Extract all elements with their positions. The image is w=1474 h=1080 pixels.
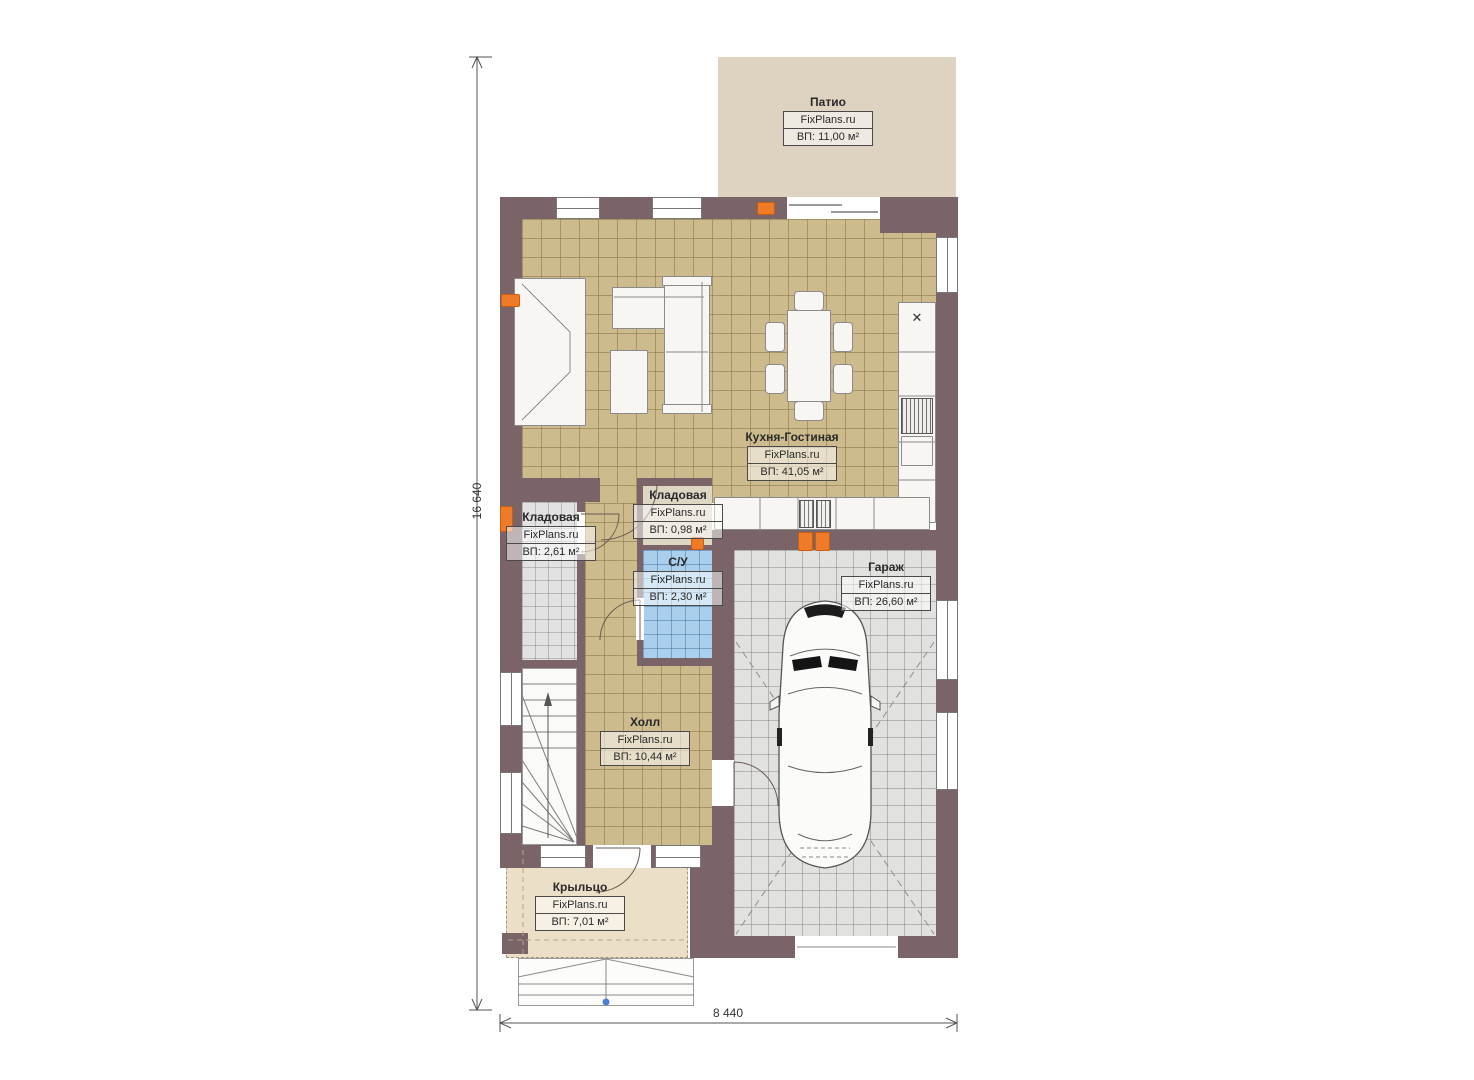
room-site: FixPlans.ru: [634, 505, 722, 522]
room-area: ВП: 10,44 м²: [601, 749, 689, 765]
dining-chair: [833, 364, 853, 394]
room-name: Холл: [583, 715, 707, 729]
window: [652, 197, 702, 219]
room-area: ВП: 11,00 м²: [784, 129, 872, 145]
sofa-seat: [664, 280, 710, 414]
stove: [901, 398, 933, 434]
room-name: Кладовая: [489, 510, 613, 524]
fireplace: [514, 278, 586, 426]
window: [936, 600, 958, 680]
window: [500, 772, 522, 834]
room-site: FixPlans.ru: [507, 527, 595, 544]
room-site: FixPlans.ru: [601, 732, 689, 749]
wall: [522, 660, 577, 668]
coffee-table: [610, 350, 648, 414]
room-area: ВП: 2,61 м²: [507, 544, 595, 560]
room-area: ВП: 7,01 м²: [536, 914, 624, 930]
door-opening: [712, 760, 734, 806]
room-name: Патио: [766, 95, 890, 109]
room-site: FixPlans.ru: [748, 447, 836, 464]
dining-chair: [794, 291, 824, 311]
room-site: FixPlans.ru: [784, 112, 872, 129]
garage-door-opening: [795, 936, 898, 958]
room-name: Гараж: [824, 560, 948, 574]
room-site: FixPlans.ru: [634, 572, 722, 589]
floor-plan: ✕: [0, 0, 1474, 1080]
kitchen-cabinet: [901, 436, 933, 466]
room-label-bathroom: С/У FixPlans.ru ВП: 2,30 м²: [616, 555, 740, 606]
room-label-kitchen-living: Кухня-Гостиная FixPlans.ru ВП: 41,05 м²: [730, 430, 854, 481]
window: [936, 237, 958, 293]
room-label-storage: Кладовая FixPlans.ru ВП: 2,61 м²: [489, 510, 613, 561]
room-label-hall: Холл FixPlans.ru ВП: 10,44 м²: [583, 715, 707, 766]
wall: [502, 933, 528, 954]
dining-chair: [765, 322, 785, 352]
staircase: [522, 668, 577, 845]
window: [556, 197, 600, 219]
wall: [637, 658, 712, 666]
radiator-icon: [815, 532, 830, 551]
window: [540, 845, 586, 868]
entry-steps: [518, 958, 694, 1006]
window: [936, 712, 958, 790]
car: [768, 596, 882, 878]
appliance: [799, 500, 814, 528]
dining-chair: [833, 322, 853, 352]
room-area: ВП: 41,05 м²: [748, 464, 836, 480]
radiator-icon: [798, 532, 813, 551]
room-area: ВП: 26,60 м²: [842, 594, 930, 610]
room-name: С/У: [616, 555, 740, 569]
room-name: Кухня-Гостиная: [730, 430, 854, 444]
dimension-height: 16 640: [470, 471, 484, 531]
sliding-door: [787, 197, 880, 219]
wall: [637, 478, 712, 486]
window: [500, 672, 522, 726]
sink-icon: ✕: [904, 310, 930, 326]
entrance-opening: [593, 845, 651, 868]
room-label-garage: Гараж FixPlans.ru ВП: 26,60 м²: [824, 560, 948, 611]
room-site: FixPlans.ru: [536, 897, 624, 914]
dining-table: [787, 310, 831, 402]
appliance: [816, 500, 831, 528]
dimension-width: 8 440: [698, 1006, 758, 1020]
room-site: FixPlans.ru: [842, 577, 930, 594]
room-label-porch: Крыльцо FixPlans.ru ВП: 7,01 м²: [518, 880, 642, 931]
wall: [880, 197, 938, 233]
dining-chair: [794, 401, 824, 421]
window: [655, 845, 701, 868]
room-label-patio: Патио FixPlans.ru ВП: 11,00 м²: [766, 95, 890, 146]
dining-chair: [765, 364, 785, 394]
room-name: Кладовая: [616, 488, 740, 502]
room-name: Крыльцо: [518, 880, 642, 894]
sofa-armrest: [662, 404, 712, 414]
room-label-small-storage: Кладовая FixPlans.ru ВП: 0,98 м²: [616, 488, 740, 539]
sofa-armrest: [662, 276, 712, 286]
wall: [500, 478, 600, 502]
radiator-icon: [501, 294, 520, 307]
room-area: ВП: 0,98 м²: [634, 522, 722, 538]
room-area: ВП: 2,30 м²: [634, 589, 722, 605]
wall: [690, 868, 712, 958]
radiator-icon: [757, 202, 775, 215]
